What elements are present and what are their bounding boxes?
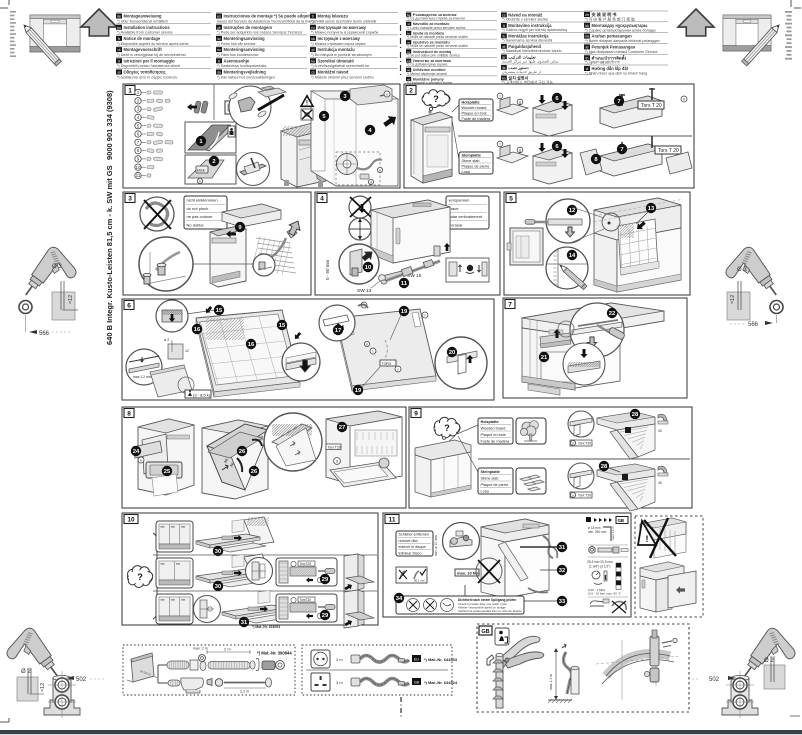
svg-text:no: no xyxy=(217,48,221,52)
svg-text:2,2 m: 2,2 m xyxy=(240,690,249,694)
svg-text:≈12: ≈12 xyxy=(730,295,736,304)
svg-text:0 - 60 mm: 0 - 60 mm xyxy=(325,259,330,280)
svg-text:uk: uk xyxy=(311,37,315,41)
svg-text:Wooden board: Wooden board xyxy=(481,426,506,430)
svg-text:GB: GB xyxy=(618,518,625,523)
svg-text:ru: ru xyxy=(311,26,314,30)
svg-text:kk: kk xyxy=(585,24,589,28)
svg-text:Petunjuk Pemasangan: Petunjuk Pemasangan xyxy=(592,45,636,50)
svg-text:Torx T20: Torx T20 xyxy=(328,446,341,450)
svg-text:Losa: Losa xyxy=(462,170,471,174)
svg-text:Fuste de madera: Fuste de madera xyxy=(462,117,492,121)
svg-text:Stone slab: Stone slab xyxy=(462,159,480,163)
svg-text:c: c xyxy=(386,92,388,97)
svg-text:≈12: ≈12 xyxy=(40,683,46,692)
svg-text:설치 설명서: 설치 설명서 xyxy=(508,75,528,81)
svg-text:คำแนะนำการติดตั้ง: คำแนะนำการติดตั้ง xyxy=(592,53,627,60)
svg-text:10: 10 xyxy=(365,265,371,271)
svg-text:30: 30 xyxy=(215,584,221,590)
svg-text:502: 502 xyxy=(709,677,720,683)
svg-text:*) Mat.-Nr. 390844: *) Mat.-Nr. 390844 xyxy=(257,651,292,656)
svg-text:No doblar: No doblar xyxy=(187,222,205,227)
svg-text:از طريق خدمات مشتريان: از طريق خدمات مشتريان xyxy=(502,69,541,74)
svg-text:min. 250 mm: min. 250 mm xyxy=(588,530,607,534)
svg-text:30: 30 xyxy=(215,549,221,555)
svg-text:nl: nl xyxy=(118,48,121,52)
svg-text:d: d xyxy=(370,181,372,185)
svg-text:29: 29 xyxy=(322,613,329,619)
svg-text:45: 45 xyxy=(658,481,662,485)
svg-text:566: 566 xyxy=(39,331,50,337)
svg-text:Torx T20: Torx T20 xyxy=(578,494,591,498)
svg-text:*) Pode ser adquirido nos noss: *) Pode ser adquirido nos nossos Serviço… xyxy=(217,31,302,35)
svg-text:(0,5 - 10 bar) max. 60 °C: (0,5 - 10 bar) max. 60 °C xyxy=(588,592,622,596)
svg-text:*) A vevőszolgálatnál szerezhe: *) A vevőszolgálatnál szerezhető be xyxy=(311,64,369,68)
svg-text:21: 21 xyxy=(541,355,548,361)
svg-text:*) Može se nabaviti preko serv: *) Može se nabaviti preko servisne služb… xyxy=(407,35,468,39)
svg-text:EU: EU xyxy=(414,657,419,661)
svg-text:Hướng dẫn lắp đặt: Hướng dẫn lắp đặt xyxy=(592,66,629,71)
svg-text:3: 3 xyxy=(128,195,132,202)
svg-text:Monteringsvejledning: Monteringsvejledning xyxy=(224,70,267,75)
svg-text:*) Može se nabaviti preko serv: *) Može se nabaviti preko servisne služb… xyxy=(407,44,468,48)
svg-text:Instrucciones de montaje *) S: Instrucciones de montaje *) Se puede adq… xyxy=(224,14,317,19)
svg-text:14: 14 xyxy=(569,253,576,259)
svg-text:Wooden board: Wooden board xyxy=(462,106,487,110)
svg-text:do not pinch: do not pinch xyxy=(187,206,209,211)
svg-text:*) Boleh didapati daripada khi: *) Boleh didapati daripada khidmat pelan… xyxy=(585,39,660,43)
svg-text:remove disc: remove disc xyxy=(399,539,419,543)
svg-text:*) Mat.-Nr. 644533: *) Mat.-Nr. 644533 xyxy=(424,657,458,662)
svg-text:33: 33 xyxy=(559,599,566,605)
svg-text:12: 12 xyxy=(185,349,189,353)
svg-text:fi: fi xyxy=(218,59,220,63)
svg-text:pl: pl xyxy=(312,48,315,52)
svg-text:15: 15 xyxy=(216,308,223,314)
svg-text:Ø 2: Ø 2 xyxy=(764,658,774,664)
svg-text:(1 3/4”) (3 1/2”): (1 3/4”) (3 1/2”) xyxy=(589,564,610,568)
svg-text:25: 25 xyxy=(164,469,171,475)
svg-text:da: da xyxy=(217,71,221,75)
svg-text:max. 2 m: max. 2 m xyxy=(193,647,208,651)
svg-text:Instrukcja montażu: Instrukcja montażu xyxy=(318,47,356,52)
svg-text:11: 11 xyxy=(389,516,396,523)
svg-text:*) Se pot obţine prin unităţil: *) Se pot obţine prin unităţile service xyxy=(407,53,460,57)
svg-text:e: e xyxy=(379,169,381,173)
svg-text:Ø 2: Ø 2 xyxy=(21,669,31,675)
svg-text:9000 901 334 (9308): 9000 901 334 (9308) xyxy=(105,90,114,160)
svg-text:Holzplatte: Holzplatte xyxy=(481,420,499,424)
svg-text:vi: vi xyxy=(586,67,589,71)
svg-text:Plaque de pierre: Plaque de pierre xyxy=(481,483,509,487)
svg-text:*) Можно получить в сервисной: *) Можно получить в сервисной службе xyxy=(311,31,378,35)
svg-text:verspannen: verspannen xyxy=(449,198,470,203)
svg-text:Torx T 20: Torx T 20 xyxy=(641,103,662,109)
svg-text:Holzplatte: Holzplatte xyxy=(462,100,480,104)
svg-text:يمكن الحصول عليها عبر مركز الخ: يمكن الحصول عليها عبر مركز الخدمة xyxy=(502,59,558,64)
svg-text:11: 11 xyxy=(401,281,408,287)
svg-text:29: 29 xyxy=(322,577,329,583)
svg-text:Οδηγίες τοποθέτησης: Οδηγίες τοποθέτησης xyxy=(124,70,166,75)
svg-text:Arahan pemasangan: Arahan pemasangan xyxy=(592,34,633,39)
svg-text:*) Über Kundendienst erhältlic: *) Über Kundendienst erhältlich xyxy=(117,19,168,23)
svg-text:it: it xyxy=(118,59,120,63)
svg-text:27: 27 xyxy=(339,425,345,431)
svg-text:安 装 说 明 书: 安 装 说 明 书 xyxy=(592,11,617,17)
svg-text:Torx T 20: Torx T 20 xyxy=(658,148,679,154)
svg-text:*) Се доставя чрез служба за к: *) Се доставя чрез служба за клиенти xyxy=(407,17,465,21)
svg-text:Monteringsanvisning: Monteringsanvisning xyxy=(224,36,266,41)
svg-text:*) Available from customer ser: *) Available from customer service xyxy=(117,31,173,35)
svg-text:g: g xyxy=(519,148,521,153)
svg-text:Steinplatte: Steinplatte xyxy=(462,153,481,157)
svg-text:*) Galima ısigyti per klientų: *) Galima ısigyti per klientų aptarnavim… xyxy=(502,28,568,32)
svg-text:*) Saņemama servisa dienestā: *) Saņemama servisa dienestā xyxy=(502,39,553,43)
svg-text:Montážní návod: Montážní návod xyxy=(318,70,349,75)
svg-text:hu: hu xyxy=(311,59,315,63)
svg-text:*) Можна отримати через сервіс: *) Можна отримати через сервіс xyxy=(311,42,366,46)
svg-text:6: 6 xyxy=(127,302,131,309)
svg-text:TorxT20: TorxT20 xyxy=(300,562,312,566)
svg-text:3 m: 3 m xyxy=(336,680,343,685)
svg-text:32: 32 xyxy=(559,568,565,574)
svg-text:10: 10 xyxy=(127,516,135,523)
svg-text:2 m: 2 m xyxy=(224,647,231,652)
svg-text:!: ! xyxy=(646,534,649,544)
svg-text:calar verticalement: calar verticalement xyxy=(449,214,483,219)
svg-text:TorxT20: TorxT20 xyxy=(300,598,312,602)
svg-text:3 m: 3 m xyxy=(336,657,343,662)
svg-text:*) Disponibili presso l'assist: *) Disponibili presso l'assistenza clien… xyxy=(117,64,180,68)
svg-text:el: el xyxy=(118,71,121,75)
svg-text:*) Obdržíte v servisní službě: *) Obdržíte v servisní službě xyxy=(502,18,548,22)
svg-text:Plaque de pierre: Plaque de pierre xyxy=(462,164,490,168)
svg-text:enlever le disque: enlever le disque xyxy=(399,545,426,549)
svg-text:502: 502 xyxy=(76,677,87,683)
svg-text:Istruzioni per il montaggio: Istruzioni per il montaggio xyxy=(124,58,176,63)
svg-text:*) Διατίθενται από το σέρβις π: *) Διατίθενται από το σέρβις πελατών xyxy=(117,75,177,79)
svg-text:7: 7 xyxy=(620,147,623,153)
svg-text:640 B Integr. Kusto-Leisten 81: 640 B Integr. Kusto-Leisten 81,5 cm - k.… xyxy=(105,165,114,345)
svg-text:?: ? xyxy=(444,423,450,433)
svg-text:de: de xyxy=(117,15,121,19)
svg-text:20: 20 xyxy=(449,350,455,356)
svg-text:Torx T20: Torx T20 xyxy=(578,442,591,446)
svg-text:Szerelési útmutató: Szerelési útmutató xyxy=(318,58,355,63)
svg-text:*) Mat.-Nr. 644524: *) Mat.-Nr. 644524 xyxy=(424,680,458,685)
svg-text:24: 24 xyxy=(133,449,140,455)
svg-text:4: 4 xyxy=(320,195,324,202)
svg-text:26: 26 xyxy=(239,449,246,455)
svg-text:11: 11 xyxy=(136,173,141,178)
svg-text:i: i xyxy=(373,349,374,354)
svg-text:*) โดยผ่านศูนย์บริการ: *) โดยผ่านศูนย์บริการ xyxy=(585,60,620,65)
svg-text:l: l xyxy=(425,313,426,318)
svg-text:ms: ms xyxy=(585,35,590,39)
svg-text:es: es xyxy=(217,15,221,19)
svg-text:través del Servicio de Asisten: través del Servicio de Asistencia Técnic… xyxy=(217,19,316,23)
svg-text:p: p xyxy=(572,494,574,498)
svg-text:*) Nhận được qua dịch vụ khách: *) Nhận được qua dịch vụ khách hàng xyxy=(585,72,647,76)
svg-text:?: ? xyxy=(137,572,143,582)
svg-text:*) Сервис орталықтарынан алуға: *) Сервис орталықтарынан алуға болады xyxy=(585,28,656,32)
svg-text:13: 13 xyxy=(648,206,655,212)
svg-text:k: k xyxy=(366,343,368,347)
svg-text:Montagevoorschrift: Montagevoorschrift xyxy=(124,47,163,52)
svg-text:cs: cs xyxy=(311,71,315,75)
svg-text:8: 8 xyxy=(127,410,131,417)
svg-text:17: 17 xyxy=(335,328,341,334)
svg-text:zh: zh xyxy=(585,13,589,17)
svg-text:GB: GB xyxy=(481,629,489,635)
svg-text:j: j xyxy=(397,367,399,372)
svg-text:*) Се добива преку сервис: *) Се добива преку сервис xyxy=(407,63,448,67)
svg-text:ne pas coincer: ne pas coincer xyxy=(187,214,214,219)
svg-text:Eliminar Disco: Eliminar Disco xyxy=(399,551,422,555)
svg-text:16: 16 xyxy=(248,342,255,348)
svg-text:min. ø 10 mm: min. ø 10 mm xyxy=(434,535,438,556)
svg-text:TORX: TORX xyxy=(382,362,393,366)
svg-text:g: g xyxy=(519,100,521,105)
svg-text:nicht einklemmen: nicht einklemmen xyxy=(187,198,218,203)
svg-text:max 1,2 mm: max 1,2 mm xyxy=(133,375,152,379)
svg-text:Інструкція з монтажу: Інструкція з монтажу xyxy=(318,36,361,41)
svg-text:th: th xyxy=(586,56,589,60)
svg-text:566: 566 xyxy=(748,322,759,328)
svg-text:12: 12 xyxy=(569,208,575,214)
svg-text:Ø 3: Ø 3 xyxy=(737,267,747,273)
svg-text:31: 31 xyxy=(559,545,566,551)
svg-text:?: ? xyxy=(433,94,439,104)
svg-text:klick: klick xyxy=(197,168,205,173)
svg-text:26: 26 xyxy=(251,469,258,475)
svg-text:Ø 3: Ø 3 xyxy=(52,264,62,270)
svg-text:n: n xyxy=(140,458,142,463)
svg-text:25,4 mm 20,5 mm: 25,4 mm 20,5 mm xyxy=(587,560,613,564)
svg-text:22: 22 xyxy=(609,311,615,317)
svg-text:SW 13: SW 13 xyxy=(357,288,372,294)
svg-text:*) Fåes hos kundeservice: *) Fåes hos kundeservice xyxy=(217,53,259,57)
svg-text:Plaque en bois: Plaque en bois xyxy=(462,111,487,115)
svg-text:*) Disponible auprès du servic: *) Disponible auprès du service après-ve… xyxy=(117,42,189,46)
svg-text:id: id xyxy=(586,46,589,50)
svg-text:28: 28 xyxy=(632,412,639,418)
svg-text:Montageanweisung: Montageanweisung xyxy=(124,14,162,19)
svg-text:Montaj kılavuzu: Montaj kılavuzu xyxy=(318,14,349,19)
svg-text:GB: GB xyxy=(414,680,420,684)
svg-text:2: 2 xyxy=(212,159,215,165)
svg-text:Instruções de montagem: Instruções de montagem xyxy=(224,25,273,30)
svg-text:2: 2 xyxy=(409,87,413,94)
svg-text:pt: pt xyxy=(218,26,221,30)
svg-text:*) 可 向 客 户 服 务 部 门 索 取: *) 可 向 客 户 服 务 部 门 索 取 xyxy=(585,17,635,22)
svg-text:Notice de montage: Notice de montage xyxy=(124,36,161,41)
svg-text:19: 19 xyxy=(355,388,362,394)
svg-text:ø 2: ø 2 xyxy=(164,338,169,342)
svg-text:Asennusohje: Asennusohje xyxy=(224,58,250,63)
svg-text:≈12: ≈12 xyxy=(68,295,74,304)
svg-text:Fuste de madera: Fuste de madera xyxy=(481,439,511,443)
svg-text:p: p xyxy=(572,442,574,446)
svg-text:Schieber entfernen: Schieber entfernen xyxy=(399,533,429,537)
svg-text:*) Finns hos vår service: *) Finns hos vår service xyxy=(217,42,256,46)
svg-text:45: 45 xyxy=(658,429,662,433)
svg-text:!: ! xyxy=(306,99,308,106)
svg-text:b: b xyxy=(199,180,201,184)
svg-text:5: 5 xyxy=(509,195,513,202)
svg-text:(3 - 8,5 k): (3 - 8,5 k) xyxy=(193,393,211,398)
svg-text:*) Mat.-Nr. 616053: *) Mat.-Nr. 616053 xyxy=(252,625,280,629)
svg-text:28: 28 xyxy=(601,464,608,470)
svg-text:Verificar la estanqueidad tras: Verificar la estanqueidad tras un ciclo … xyxy=(458,609,523,613)
svg-text:h: h xyxy=(683,97,685,102)
svg-text:*) Merret nëpërmjet servisit: *) Merret nëpërmjet servisit xyxy=(407,72,447,76)
svg-text:31: 31 xyxy=(241,620,248,626)
svg-text:Installation instructions: Installation instructions xyxy=(124,25,171,30)
svg-text:9: 9 xyxy=(414,410,418,417)
svg-text:*) Do nabycia w punkcie serwis: *) Do nabycia w punkcie serwisowym xyxy=(311,53,372,57)
svg-text:10: 10 xyxy=(135,165,141,170)
svg-text:Инструкция по монтажу: Инструкция по монтажу xyxy=(318,25,367,30)
svg-text:19: 19 xyxy=(401,309,408,315)
svg-text:en: en xyxy=(117,26,121,30)
svg-text:max 1,1 m: max 1,1 m xyxy=(611,525,615,540)
svg-text:1: 1 xyxy=(128,87,132,94)
svg-text:*) Yetkili servis üzerinden te: *) Yetkili servis üzerinden temin edileb… xyxy=(311,19,377,23)
svg-text:max 1,1 m: max 1,1 m xyxy=(549,674,553,690)
svg-text:*) Deze is verkrijgbaar bij de: *) Deze is verkrijgbaar bij de servicedi… xyxy=(117,53,186,57)
svg-text:Steinplatte: Steinplatte xyxy=(481,470,500,474)
svg-text:7: 7 xyxy=(508,301,512,308)
svg-text:*) Saatavissa huoltopalvelusta: *) Saatavissa huoltopalvelusta xyxy=(217,64,267,68)
svg-text:sv: sv xyxy=(217,37,221,41)
svg-text:Monteringsanvisning: Monteringsanvisning xyxy=(224,47,266,52)
svg-text:Монтаждау нұсқаулықтары: Монтаждау нұсқаулықтары xyxy=(592,23,648,28)
svg-text:*) Kan købes hos serviceafdeli: *) Kan købes hos serviceafdelingen xyxy=(217,75,275,79)
svg-text:*) Můžete obdržet přes servisn: *) Můžete obdržet přes servisní službu xyxy=(311,75,374,79)
svg-text:Stone slab: Stone slab xyxy=(481,476,499,480)
svg-text:*) Lahko nabavite preko servis: *) Lahko nabavite preko servisne službe xyxy=(407,26,466,30)
svg-text:Plaque en bois: Plaque en bois xyxy=(481,433,506,437)
svg-text:*) Saadaval klienditeeninduse: *) Saadaval klienditeeninduse kaudu xyxy=(502,49,562,53)
svg-text:90.1 mm: 90.1 mm xyxy=(414,579,426,583)
svg-text:15: 15 xyxy=(279,323,286,329)
svg-text:*) bisa didapatkan melalui Cu: *) bisa didapatkan melalui Customer Serv… xyxy=(585,50,658,54)
svg-text:34: 34 xyxy=(396,596,403,602)
svg-text:16: 16 xyxy=(194,327,201,333)
svg-text:7: 7 xyxy=(617,99,620,105)
svg-text:Losa: Losa xyxy=(481,489,490,493)
svg-text:Enrasar: Enrasar xyxy=(449,222,464,227)
